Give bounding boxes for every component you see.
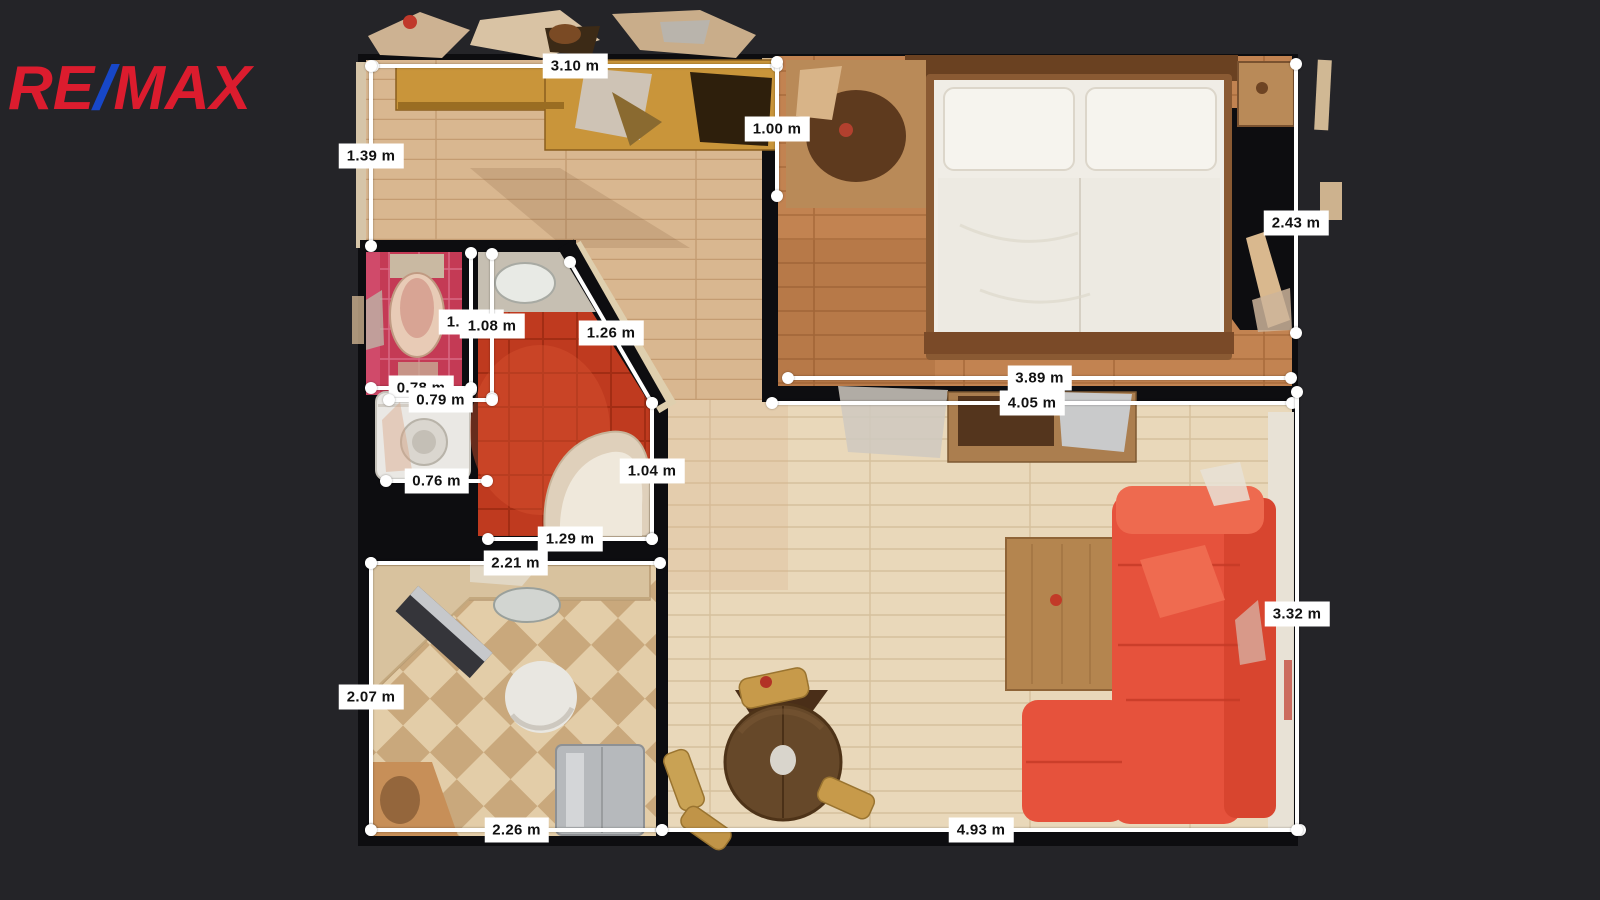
measurement-label-laundry-width: 0.76 m (404, 469, 469, 494)
measurement-endpoint-living-right-depth (1291, 824, 1303, 836)
measurement-endpoint-laundry-width (380, 475, 392, 487)
measurement-endpoint-wc-width-a (365, 382, 377, 394)
measurement-label-living-width-bottom: 4.93 m (949, 818, 1014, 843)
measurement-label-bath-right-height: 1.04 m (620, 459, 685, 484)
measurement-label-bath-diagonal: 1.26 m (579, 320, 644, 345)
measurement-endpoint-living-width-top (766, 397, 778, 409)
measurement-label-kitchen-width-top: 2.21 m (483, 551, 548, 576)
measurement-endpoint-laundry-width (481, 475, 493, 487)
measurement-label-hall-width: 3.10 m (543, 54, 608, 79)
measurement-endpoint-bath-width (482, 533, 494, 545)
measurement-endpoint-wc-width-b (486, 394, 498, 406)
measurement-label-hall-right-depth: 1.00 m (745, 117, 810, 142)
measurement-endpoint-hall-right-depth (771, 56, 783, 68)
measurement-label-wc-width-b: 0.79 m (408, 388, 473, 413)
measurement-label-bath-width: 1.29 m (538, 527, 603, 552)
measurement-label-hall-depth: 1.39 m (339, 144, 404, 169)
measurement-endpoint-kitchen-width-bottom (365, 824, 377, 836)
measurement-endpoint-wc-height-b (486, 248, 498, 260)
measurement-label-living-right-depth: 3.32 m (1265, 602, 1330, 627)
measurement-endpoint-hall-right-depth (771, 190, 783, 202)
measurement-line-bedroom-right-depth (1294, 64, 1298, 333)
measurement-endpoint-wc-height-a (465, 247, 477, 259)
measurement-endpoint-kitchen-depth (365, 557, 377, 569)
measurement-endpoint-bedroom-width (1285, 372, 1297, 384)
measurement-endpoint-living-width-bottom (656, 824, 668, 836)
screenshot-root: RE/MAX (0, 0, 1600, 900)
measurement-endpoint-wc-width-b (383, 394, 395, 406)
measurement-endpoint-living-right-depth (1291, 386, 1303, 398)
measurement-label-bedroom-right-depth: 2.43 m (1264, 211, 1329, 236)
measurement-endpoint-hall-depth (365, 60, 377, 72)
measurement-endpoint-bedroom-right-depth (1290, 327, 1302, 339)
measurement-endpoint-kitchen-width-top (654, 557, 666, 569)
measurement-endpoint-bath-width (646, 533, 658, 545)
measurement-label-kitchen-width-bottom: 2.26 m (484, 818, 549, 843)
measurement-endpoint-bedroom-width (782, 372, 794, 384)
measurement-endpoint-bath-diagonal (564, 256, 576, 268)
measurement-label-bedroom-width: 3.89 m (1007, 366, 1072, 391)
measurement-endpoint-bath-right-height (646, 397, 658, 409)
measurement-layer: 3.10 m1.39 m1.00 m2.43 m3.89 m4.05 m1.04… (0, 0, 1600, 900)
measurement-label-kitchen-depth: 2.07 m (339, 684, 404, 709)
measurement-label-wc-height-b: 1.08 m (460, 314, 525, 339)
measurement-endpoint-hall-depth (365, 240, 377, 252)
measurement-label-living-width-top: 4.05 m (1000, 391, 1065, 416)
measurement-endpoint-bedroom-right-depth (1290, 58, 1302, 70)
